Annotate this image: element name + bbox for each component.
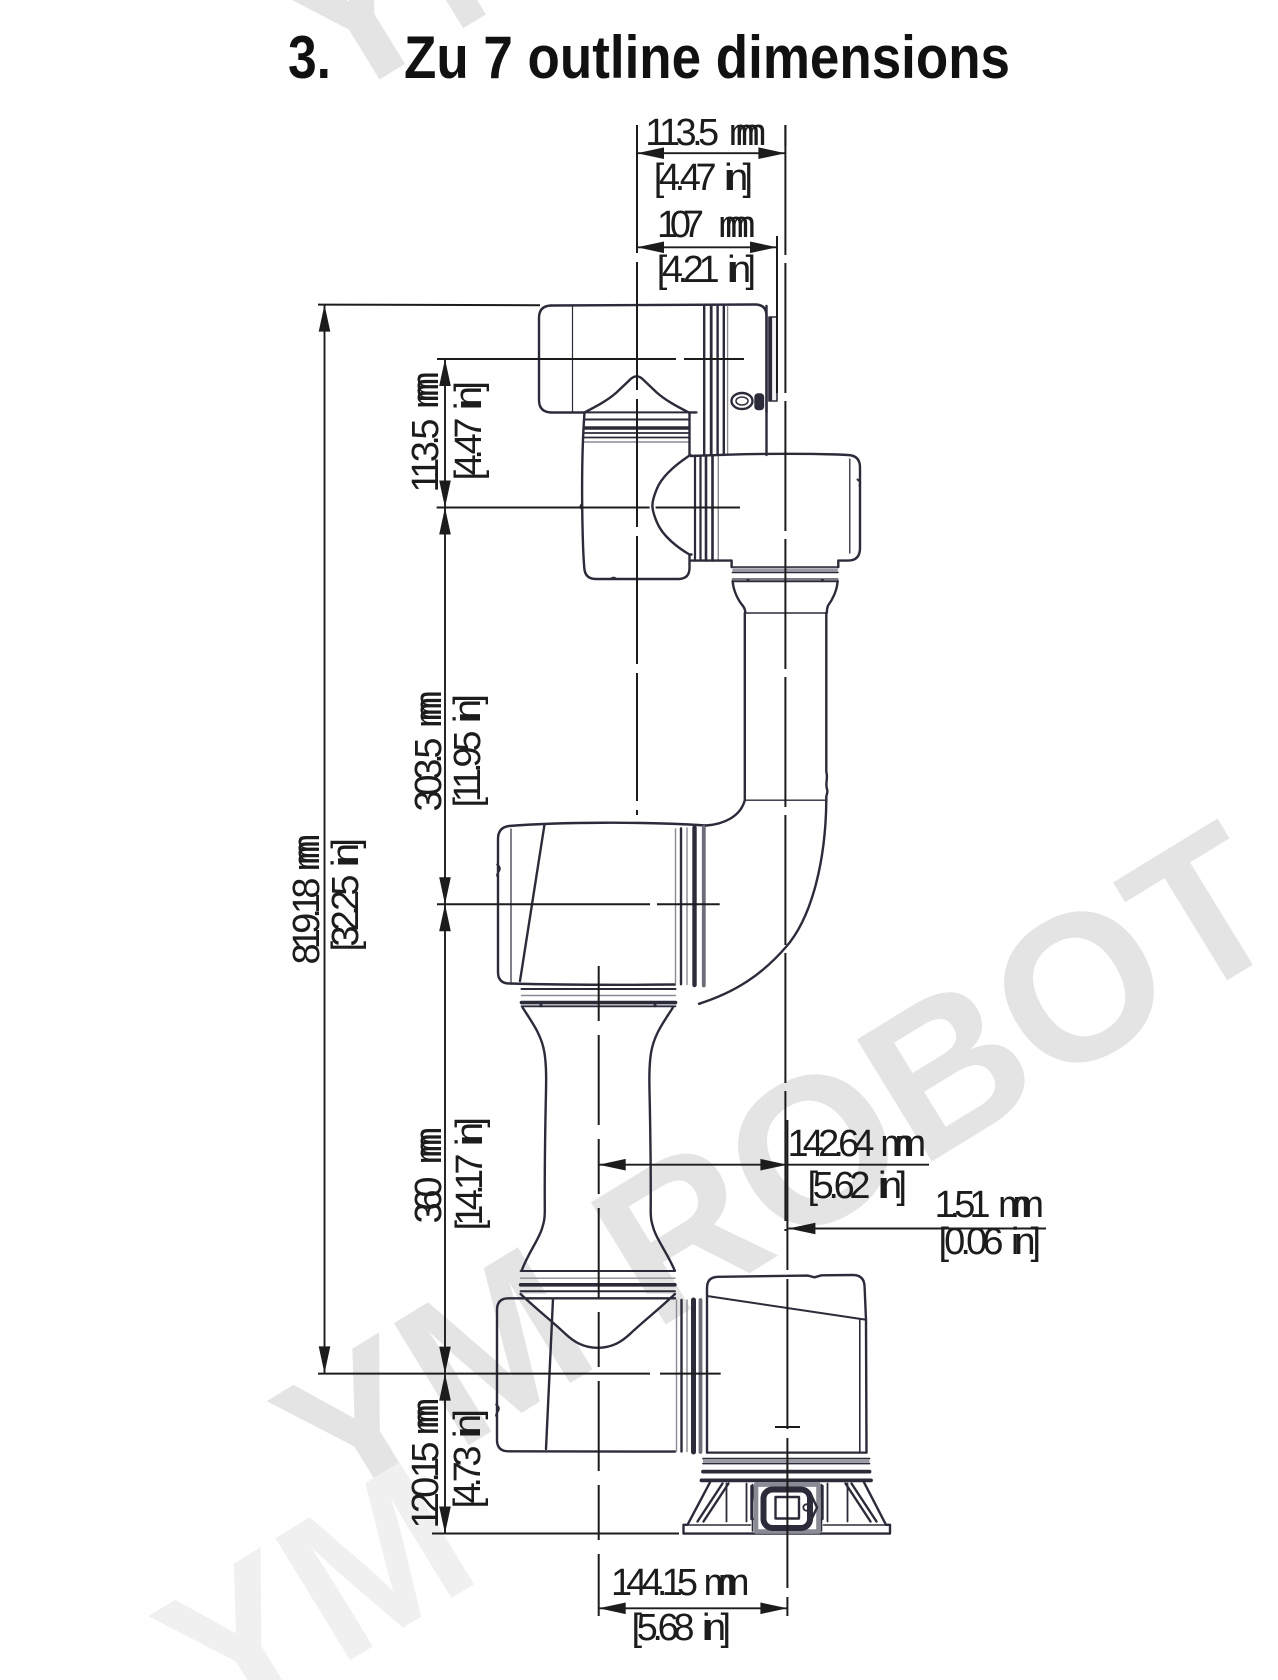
svg-text:in]: in] xyxy=(727,249,756,291)
svg-text:[11.95: [11.95 xyxy=(447,731,489,808)
svg-text:113.5: 113.5 xyxy=(405,419,447,493)
svg-text:in]: in] xyxy=(878,1165,907,1207)
svg-text:[4.47: [4.47 xyxy=(654,157,717,199)
svg-text:303.5: 303.5 xyxy=(408,738,450,812)
svg-text:in]: in] xyxy=(449,1117,491,1146)
svg-text:mm: mm xyxy=(405,1398,447,1436)
svg-text:[4.47: [4.47 xyxy=(448,418,490,481)
svg-text:142.64: 142.64 xyxy=(788,1123,875,1165)
svg-text:Zu 7 outline dimensions: Zu 7 outline dimensions xyxy=(404,24,1010,91)
svg-text:in]: in] xyxy=(724,157,753,199)
svg-text:120.15: 120.15 xyxy=(405,1442,447,1529)
svg-text:in]: in] xyxy=(447,694,489,723)
svg-text:mm: mm xyxy=(408,690,450,728)
svg-text:[5.62: [5.62 xyxy=(808,1165,871,1207)
svg-text:in]: in] xyxy=(447,1409,489,1438)
svg-text:[32.25: [32.25 xyxy=(325,875,367,952)
svg-text:mm: mm xyxy=(286,834,328,872)
svg-text:819.18: 819.18 xyxy=(286,878,328,965)
svg-text:in]: in] xyxy=(325,838,367,867)
svg-text:[4.21: [4.21 xyxy=(657,249,720,291)
svg-text:mm: mm xyxy=(704,1562,750,1604)
svg-text:[14.17: [14.17 xyxy=(449,1154,491,1231)
svg-text:mm: mm xyxy=(998,1184,1044,1226)
svg-text:144.15: 144.15 xyxy=(611,1562,698,1604)
svg-text:mm: mm xyxy=(718,204,756,246)
svg-text:107: 107 xyxy=(657,204,704,246)
svg-text:360: 360 xyxy=(408,1177,450,1224)
svg-text:mm: mm xyxy=(408,1127,450,1165)
svg-text:1.51: 1.51 xyxy=(935,1184,991,1226)
svg-text:113.5: 113.5 xyxy=(645,112,719,154)
svg-text:mm: mm xyxy=(729,112,767,154)
svg-text:mm: mm xyxy=(405,371,447,409)
svg-text:[4.73: [4.73 xyxy=(447,1446,489,1509)
svg-text:3.: 3. xyxy=(288,24,331,91)
svg-text:[5.68: [5.68 xyxy=(632,1607,695,1649)
svg-text:in]: in] xyxy=(702,1607,731,1649)
svg-text:mm: mm xyxy=(880,1123,926,1165)
svg-text:in]: in] xyxy=(1011,1221,1041,1263)
svg-text:[0.06: [0.06 xyxy=(939,1221,1004,1263)
svg-text:in]: in] xyxy=(448,381,490,410)
